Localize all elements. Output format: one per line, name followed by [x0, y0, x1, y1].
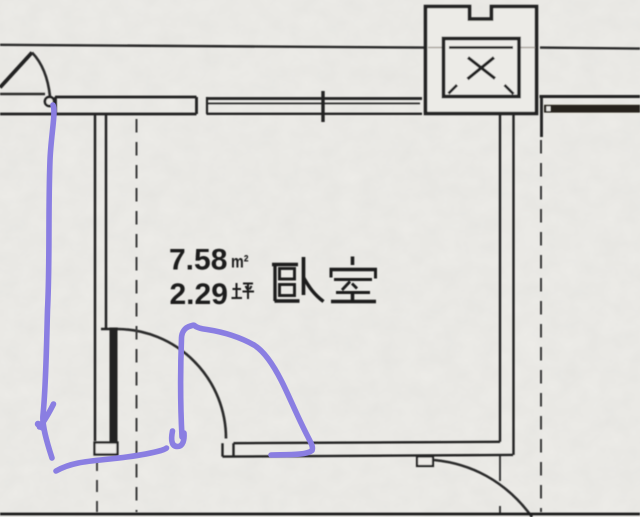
svg-text:m²: m²	[231, 252, 249, 272]
svg-text:2.29: 2.29	[170, 278, 228, 311]
svg-text:7.58: 7.58	[169, 244, 227, 277]
